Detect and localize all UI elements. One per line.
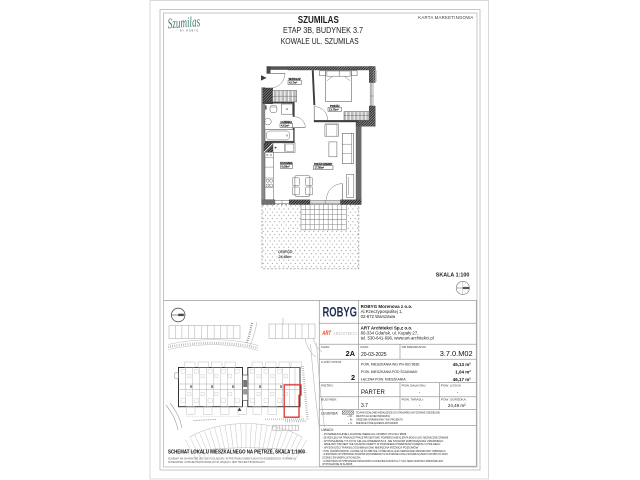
- svg-text:POW. MIESZKANIA WG PN-ISO 983: POW. MIESZKANIA WG PN-ISO 9836:: [361, 363, 420, 367]
- svg-text:46,17 m²: 46,17 m²: [453, 377, 472, 382]
- svg-text:+ S:: + S:: [348, 421, 353, 425]
- svg-text:SZUMILAS: SZUMILAS: [298, 15, 339, 26]
- svg-text:POW. BALKONU:: POW. BALKONU:: [402, 384, 427, 388]
- svg-text:POW. LOGGII:: POW. LOGGII:: [441, 384, 462, 388]
- svg-text:DATA:: DATA:: [360, 345, 369, 349]
- svg-text:LEGENDA:: LEGENDA:: [321, 411, 338, 415]
- svg-text:WENTYLACJA MECHANICZNA: WENTYLACJA MECHANICZNA: [356, 414, 390, 418]
- svg-text:KOWALE UL. SZUMILAS: KOWALE UL. SZUMILAS: [281, 37, 359, 46]
- svg-text:PIĘTRO:: PIĘTRO:: [321, 384, 334, 388]
- svg-text:ART: ART: [322, 330, 332, 337]
- svg-text:FAZA:: FAZA:: [321, 345, 330, 349]
- svg-text:6,08m²: 6,08m²: [282, 165, 290, 169]
- svg-text:BUDYNEK:: BUDYNEK:: [321, 398, 337, 402]
- svg-text:ŁĄCZNA POW. MIESZKANIA:: ŁĄCZNA POW. MIESZKANIA:: [361, 377, 406, 381]
- svg-text:+ W:: + W:: [347, 414, 353, 418]
- svg-text:SKALA 1:100: SKALA 1:100: [436, 272, 470, 278]
- svg-text:45,13 m²: 45,13 m²: [453, 362, 472, 367]
- svg-text:BY ROBYG: BY ROBYG: [180, 31, 199, 33]
- svg-text:SCHEMATEM, A PROJEKTEM BUDOWLA: SCHEMATEM, A PROJEKTEM BUDOWLANYM, WIĄŻĄ…: [168, 461, 265, 464]
- svg-text:ILOŚĆ POKOI:: ILOŚĆ POKOI:: [321, 359, 342, 364]
- svg-text:POW. OGRÓDKA:: POW. OGRÓDKA:: [441, 397, 467, 402]
- svg-text:ARCHITEKCI: ARCHITEKCI: [333, 331, 357, 336]
- svg-text:PARTER: PARTER: [361, 390, 385, 396]
- svg-text:1,04 m²: 1,04 m²: [455, 369, 471, 374]
- svg-text:20-03-2025: 20-03-2025: [361, 352, 387, 358]
- svg-text:UWAGI:: UWAGI:: [321, 428, 333, 432]
- svg-text:3.7.0.M02: 3.7.0.M02: [440, 349, 473, 358]
- svg-text:3.7: 3.7: [361, 403, 368, 409]
- svg-text:2A: 2A: [346, 349, 356, 358]
- svg-text:4,61m²: 4,61m²: [281, 124, 289, 128]
- svg-text:B:: B:: [350, 417, 353, 421]
- svg-text:POW. MIESZKANIA POD ŚCIANAMI:: POW. MIESZKANIA POD ŚCIANAMI:: [361, 369, 418, 374]
- svg-text:GRZEJNIK DRABINKOWY, WG PROJEK: GRZEJNIK DRABINKOWY, WG PROJEKTU: [356, 417, 403, 421]
- svg-text:24,49 m²: 24,49 m²: [448, 403, 466, 408]
- svg-text:ETAP 3B, BUDYNEK 3.7: ETAP 3B, BUDYNEK 3.7: [283, 26, 363, 35]
- svg-text:SCHEMAT LOKALU MIESZKALNEGO NA: SCHEMAT LOKALU MIESZKALNEGO NA PIĘTRZE, …: [168, 450, 305, 456]
- svg-text:ROBYG: ROBYG: [323, 304, 358, 320]
- svg-text:02-872 Warszawa: 02-872 Warszawa: [361, 314, 396, 319]
- svg-text:NR MIESZKANIA:: NR MIESZKANIA:: [402, 345, 427, 349]
- svg-text:MIEJSCE PODŁĄCZENIA ZMYWARKI: MIEJSCE PODŁĄCZENIA ZMYWARKI: [356, 421, 398, 425]
- svg-text:OGRÓD: OGRÓD: [278, 249, 293, 254]
- svg-text:KARTA MARKETINGOWA: KARTA MARKETINGOWA: [418, 15, 473, 20]
- svg-text:17,58m²: 17,58m²: [315, 166, 325, 170]
- svg-text:POW. TARASU:: POW. TARASU:: [402, 398, 424, 402]
- svg-text:tel. 530-641-696, www.art-arch: tel. 530-641-696, www.art-architekci.pl: [361, 336, 434, 341]
- svg-text:2: 2: [351, 373, 355, 382]
- svg-text:24,49m²: 24,49m²: [278, 255, 293, 259]
- svg-text:4,17m²: 4,17m²: [289, 81, 297, 85]
- svg-text:13,73m²: 13,73m²: [329, 107, 339, 111]
